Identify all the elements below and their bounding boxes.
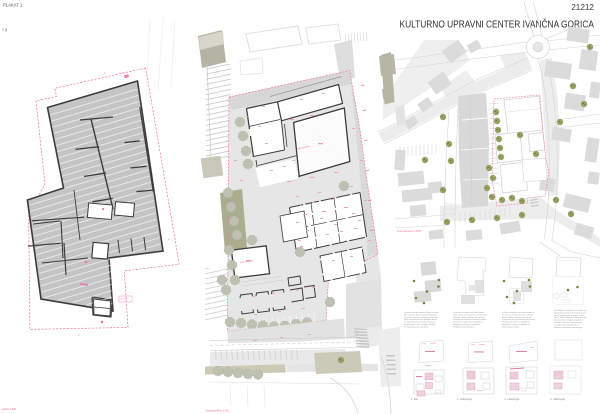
svg-text:uvoz: uvoz xyxy=(121,73,126,75)
svg-text:omogoča učinkovito rabo energi: omogoča učinkovito rabo energije. xyxy=(554,326,583,329)
svg-text:1 g: 1 g xyxy=(2,28,7,32)
svg-text:Pritličje je javno dostopno.: Pritličje je javno dostopno. xyxy=(453,325,475,328)
svg-text:ter zagotavlja javne površine.: ter zagotavlja javne površine. xyxy=(404,325,429,328)
svg-text:KULTURNO UPRAVNI CENTER IVANČN: KULTURNO UPRAVNI CENTER IVANČNA GORICA xyxy=(400,19,595,30)
svg-text:garaze 1:500: garaze 1:500 xyxy=(2,408,17,411)
svg-text:shramba: shramba xyxy=(120,298,129,301)
svg-text:2. nadstropje: 2. nadstropje xyxy=(505,397,521,401)
svg-text:urbano opremo trga.: urbano opremo trga. xyxy=(502,325,520,328)
svg-text:3. nadstropje: 3. nadstropje xyxy=(550,397,566,401)
svg-text:situacija pritlicje 1:500: situacija pritlicje 1:500 xyxy=(206,410,230,413)
svg-text:1. nadstropje: 1. nadstropje xyxy=(457,397,473,401)
svg-text:sirsa situacija 1:1000: sirsa situacija 1:1000 xyxy=(397,229,422,233)
svg-text:PLAKAT 1: PLAKAT 1 xyxy=(3,3,23,8)
svg-text:21212: 21212 xyxy=(571,3,594,12)
svg-text:1. klet: 1. klet xyxy=(411,397,418,401)
